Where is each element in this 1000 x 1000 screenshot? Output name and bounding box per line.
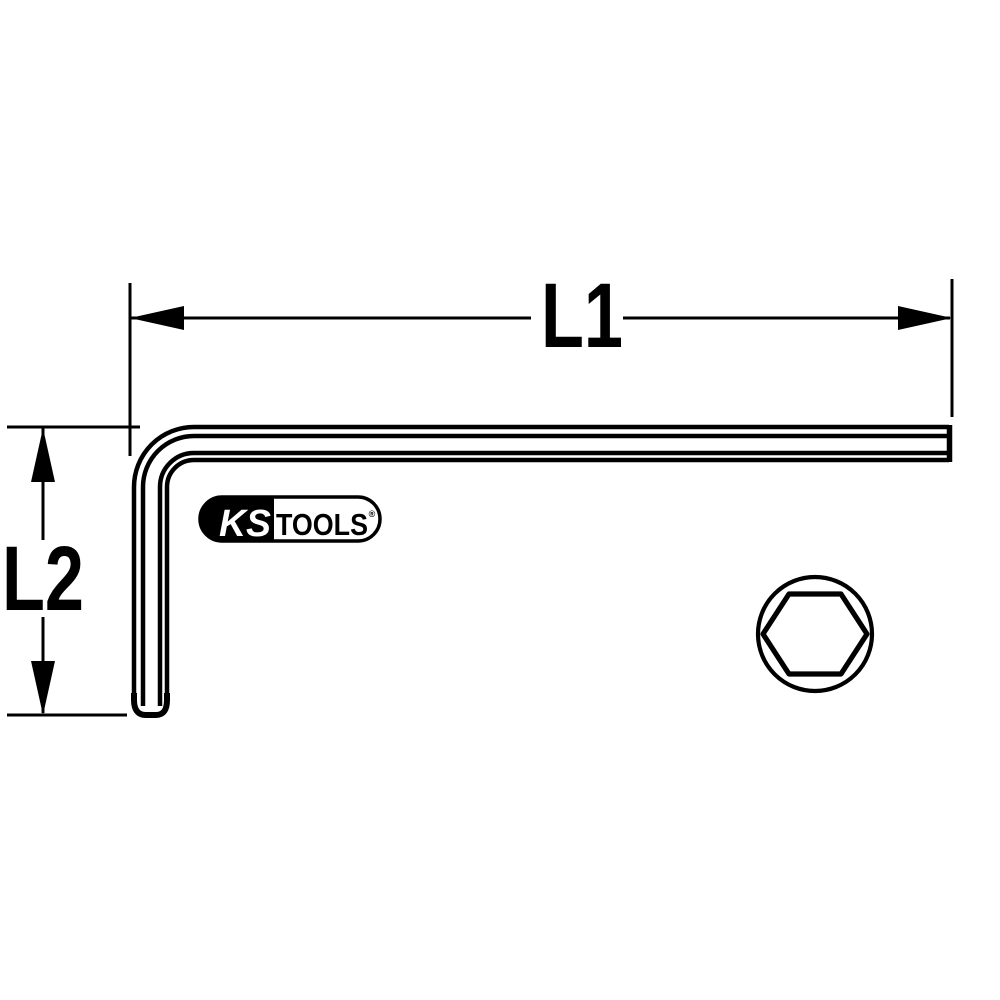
l2-arrowhead-up-icon [31, 428, 55, 482]
technical-drawing-page: L1 L2 KS TOOL [0, 0, 1000, 1000]
l1-arrowhead-right-icon [898, 306, 952, 330]
cross-section-hexagon [763, 594, 867, 674]
l1-arrowhead-left-icon [130, 306, 184, 330]
logo-ks-text: KS [219, 503, 271, 545]
hex-key-technical-drawing: L1 L2 KS TOOL [0, 0, 1000, 1000]
logo-registered-mark: ® [369, 509, 376, 519]
l2-arrowhead-down-icon [31, 661, 55, 715]
logo-tools-text: TOOLS [276, 507, 368, 542]
hex-key-face-line-upper [143, 436, 949, 706]
ks-tools-logo: KS TOOLS ® [200, 497, 380, 545]
hexagon-cross-section-icon [758, 577, 872, 691]
hex-key-outer-edge [134, 427, 949, 697]
l1-label: L1 [541, 265, 623, 367]
l2-label: L2 [2, 528, 84, 630]
